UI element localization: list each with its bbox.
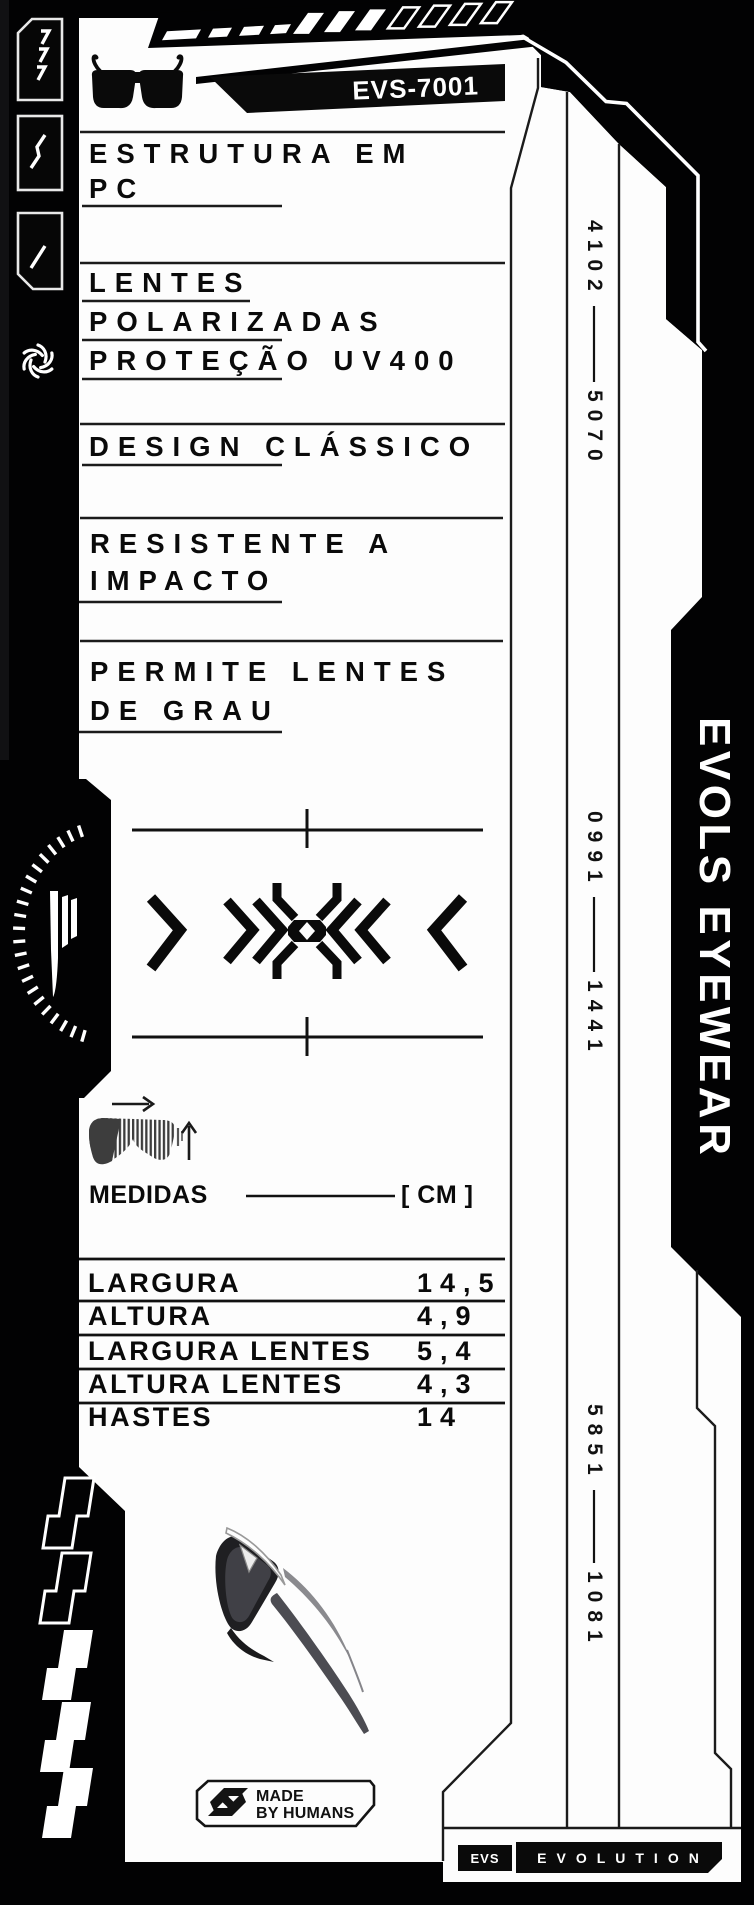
svg-text:ALTURA: ALTURA [88, 1301, 213, 1331]
svg-text:4102: 4102 [583, 220, 606, 299]
svg-text:4,3: 4,3 [417, 1369, 479, 1399]
svg-text:BY HUMANS: BY HUMANS [256, 1805, 355, 1822]
svg-text:1081: 1081 [583, 1571, 606, 1650]
svg-text:MEDIDAS: MEDIDAS [89, 1181, 208, 1209]
svg-text:IMPACTO: IMPACTO [90, 565, 277, 596]
svg-text:PC: PC [89, 173, 145, 204]
svg-text:5070: 5070 [583, 390, 606, 469]
svg-text:DESIGN CLÁSSICO: DESIGN CLÁSSICO [89, 431, 479, 462]
svg-text:5851: 5851 [583, 1404, 606, 1483]
svg-text:1441: 1441 [583, 980, 606, 1059]
svg-text:LARGURA: LARGURA [88, 1268, 241, 1298]
svg-text:DE GRAU: DE GRAU [90, 695, 280, 726]
svg-text:EVOLS EYEWEAR: EVOLS EYEWEAR [690, 717, 739, 1159]
svg-text:MADE: MADE [256, 1788, 304, 1805]
svg-text:[ CM ]: [ CM ] [401, 1181, 473, 1209]
svg-text:ALTURA LENTES: ALTURA LENTES [88, 1369, 344, 1399]
svg-text:5,4: 5,4 [417, 1336, 479, 1366]
svg-text:EVS-7001: EVS-7001 [352, 70, 480, 105]
svg-text:LENTES: LENTES [89, 267, 251, 298]
svg-text:ESTRUTURA EM: ESTRUTURA EM [89, 138, 414, 169]
svg-text:EVS: EVS [470, 1851, 499, 1866]
svg-text:HASTES: HASTES [88, 1402, 213, 1432]
svg-text:4,9: 4,9 [417, 1301, 479, 1331]
svg-text:POLARIZADAS: POLARIZADAS [89, 306, 387, 337]
svg-text:PERMITE LENTES: PERMITE LENTES [90, 656, 454, 687]
svg-text:EVOLUTION: EVOLUTION [537, 1850, 709, 1866]
svg-text:14: 14 [417, 1402, 463, 1432]
svg-text:14,5: 14,5 [417, 1268, 502, 1298]
svg-text:PROTEÇÃO UV400: PROTEÇÃO UV400 [89, 345, 463, 376]
svg-text:0991: 0991 [583, 811, 606, 890]
svg-text:LARGURA LENTES: LARGURA LENTES [88, 1336, 372, 1366]
svg-text:RESISTENTE A: RESISTENTE A [90, 528, 397, 559]
